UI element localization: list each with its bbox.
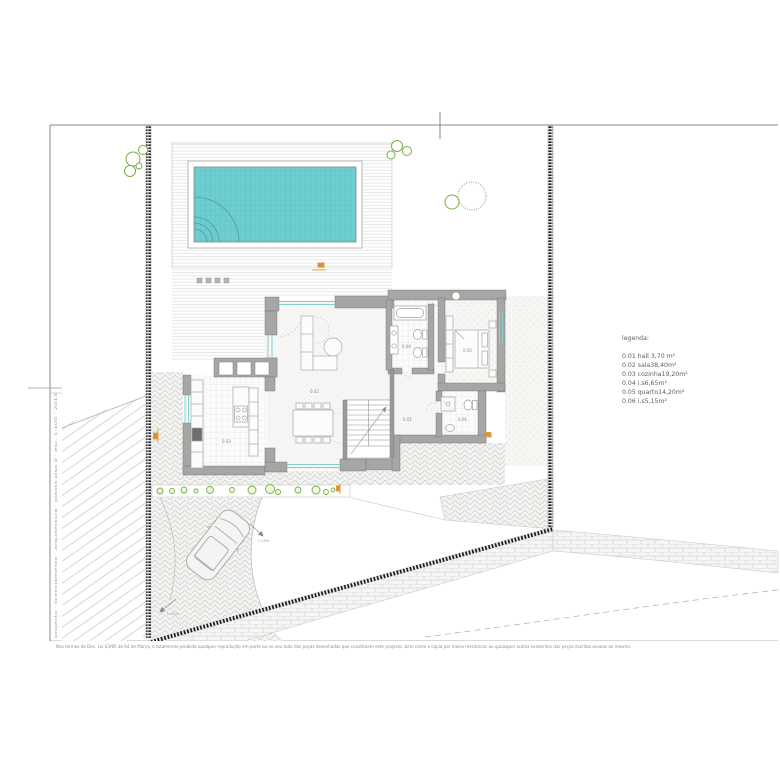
legend-item-2: 0.02 sala38,40m² — [622, 362, 677, 369]
vanity — [390, 326, 398, 354]
nightstand-1 — [489, 321, 496, 328]
deck-extension-2 — [172, 297, 265, 360]
floor-plan-svg: i=10% i=10% — [0, 0, 780, 780]
round-table — [324, 338, 342, 356]
legend-item-5: 0.05 quarto14,20m² — [622, 389, 685, 396]
boundary-wall-right — [548, 126, 553, 528]
pillow-2 — [482, 351, 488, 365]
paved-wedge — [440, 478, 553, 529]
room-label-quarto: 0.05 — [463, 348, 472, 353]
legend-item-3: 0.03 cozinha19,20m² — [622, 371, 688, 378]
room-label-sala: 0.02 — [310, 389, 319, 394]
copyright-disclaimer: Nos termos do Dec. Lei 63/85 de 04 de Ma… — [56, 644, 631, 649]
swimming-pool — [188, 161, 362, 248]
yard-divider-line — [348, 497, 445, 520]
planter-strip — [152, 485, 350, 498]
room-label-is-bottom: 0.06 — [458, 417, 467, 422]
toilet — [414, 330, 422, 340]
legend-item-6: 0.06 i.s5,15m² — [622, 398, 667, 405]
patio-west — [152, 372, 183, 471]
legend-title: legenda: — [622, 335, 649, 342]
slope-embankment — [62, 396, 146, 656]
legend: legenda: 0.01 hall 3,70 m² 0.02 sala38,4… — [622, 335, 688, 405]
tree-cluster-east — [445, 182, 486, 210]
toilet-tank — [423, 330, 428, 339]
slope-label-b: i=10% — [167, 612, 179, 616]
oven — [192, 428, 202, 441]
room-label-hall: 0.01 — [403, 417, 412, 422]
room-label-cozinha: 0.03 — [222, 439, 231, 444]
kitchen-counter — [191, 380, 203, 468]
pillow-1 — [482, 333, 488, 347]
bidet-tank — [423, 348, 428, 357]
slope-arrow-a: i=10% — [250, 524, 270, 543]
slope-label-a: i=10% — [258, 539, 270, 543]
road-centerline — [425, 590, 778, 637]
nightstand-2 — [489, 370, 496, 377]
sink-2 — [446, 425, 455, 432]
boundary-wall-left — [146, 126, 151, 638]
shower — [441, 397, 455, 411]
bidet — [414, 348, 422, 358]
bathtub — [394, 306, 426, 320]
deck-extension — [172, 268, 392, 297]
floor-hall — [392, 370, 438, 440]
drawing-sheet: i=10% i=10% — [0, 0, 780, 780]
stairs — [347, 400, 390, 458]
margin-vertical-text: projecto · licenciamento · arquitectura … — [54, 393, 58, 638]
pantry-closets — [219, 362, 269, 375]
legend-item-4: 0.04 i.s6,65m² — [622, 380, 667, 387]
patio-southeast — [392, 443, 505, 471]
plant-pot — [452, 292, 460, 300]
sidewalk-right — [553, 530, 778, 573]
legend-item-1: 0.01 hall 3,70 m² — [622, 353, 676, 360]
toilet-2 — [464, 400, 472, 410]
room-label-is-top: 0.04 — [402, 344, 411, 349]
patio-east — [505, 296, 548, 466]
tree-cluster-northwest — [125, 146, 148, 177]
